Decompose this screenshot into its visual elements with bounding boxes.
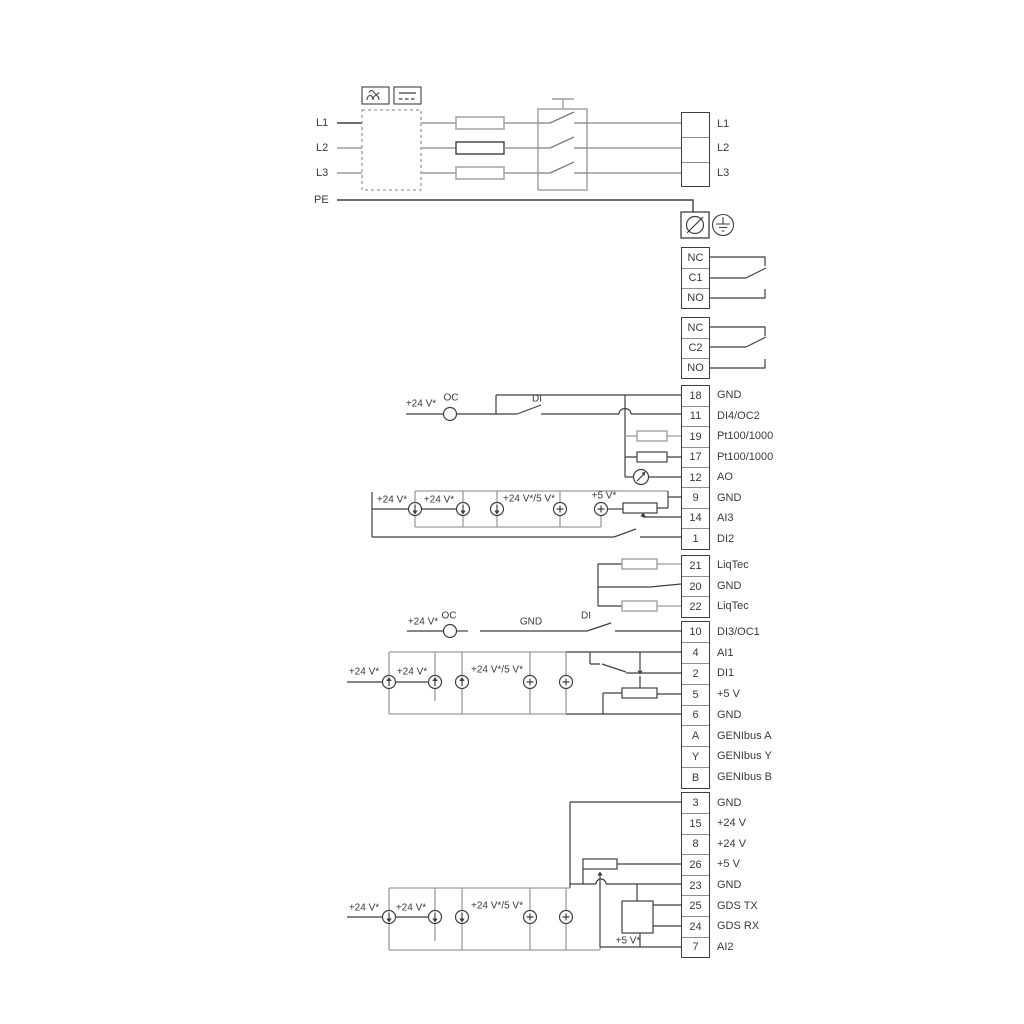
label-oc: OC bbox=[442, 611, 457, 622]
terminal-label: DI4/OC2 bbox=[717, 407, 760, 425]
ac-symbol-icon bbox=[362, 87, 389, 104]
terminal-cell: 14 bbox=[682, 508, 709, 528]
label-oc: OC bbox=[444, 393, 459, 404]
terminal-label: AI3 bbox=[717, 509, 734, 527]
terminal-cell: 7 bbox=[682, 937, 709, 958]
relay2-switch-icon bbox=[709, 337, 766, 347]
terminal-cell: 12 bbox=[682, 467, 709, 487]
terminal-label: GND bbox=[717, 577, 741, 595]
terminal-cell: 10 bbox=[682, 622, 709, 642]
resistor-icon bbox=[622, 559, 657, 569]
label-5v: +5 V* bbox=[616, 936, 641, 947]
terminal-cell: 2 bbox=[682, 663, 709, 684]
open-collector-icon bbox=[444, 625, 457, 638]
terminal-label: DI3/OC1 bbox=[717, 623, 760, 641]
label-di: DI bbox=[581, 611, 591, 622]
output-label-l1: L1 bbox=[717, 115, 729, 133]
terminal-label: GND bbox=[717, 706, 741, 724]
terminal-cell: 19 bbox=[682, 426, 709, 446]
fuse-icon bbox=[456, 117, 504, 179]
terminal-block-io2: 10 4 2 5 6 A Y B bbox=[681, 621, 710, 789]
terminal-cell: 5 bbox=[682, 684, 709, 705]
io1-wires bbox=[406, 395, 681, 485]
terminal-cell: B bbox=[682, 767, 709, 788]
terminal-cell: 18 bbox=[682, 386, 709, 406]
terminal-cell: 21 bbox=[682, 556, 709, 576]
terminal-label: GDS TX bbox=[717, 897, 758, 915]
terminal-label: +24 V bbox=[717, 814, 746, 832]
label-24v: +24 V* bbox=[377, 495, 407, 506]
terminal-label: AI1 bbox=[717, 644, 734, 662]
terminal-cell bbox=[682, 162, 709, 187]
wire-hop bbox=[619, 409, 681, 415]
label-24v: +24 V* bbox=[424, 495, 454, 506]
input-label-l3: L3 bbox=[316, 164, 328, 182]
terminal-block-relay1: NC C1 NO bbox=[681, 247, 710, 309]
ai2-options bbox=[347, 802, 681, 950]
wiper-arrow bbox=[597, 872, 602, 876]
di-switch-icon bbox=[496, 405, 619, 414]
terminal-cell: 11 bbox=[682, 406, 709, 426]
terminal-cell: C2 bbox=[682, 338, 709, 358]
terminal-cell: 20 bbox=[682, 576, 709, 596]
terminal-cell: 3 bbox=[682, 793, 709, 813]
input-label-l2: L2 bbox=[316, 139, 328, 157]
terminal-cell: 22 bbox=[682, 596, 709, 616]
resistor-icon bbox=[637, 431, 667, 441]
terminal-cell: NO bbox=[682, 288, 709, 308]
screw-terminal-icon bbox=[681, 212, 709, 238]
terminal-label: AO bbox=[717, 468, 733, 486]
terminal-cell: NC bbox=[682, 248, 709, 268]
ai1-options bbox=[347, 652, 681, 714]
label-5v: +5 V* bbox=[592, 491, 617, 502]
label-di: DI bbox=[532, 394, 542, 405]
terminal-label: GENIbus B bbox=[717, 768, 772, 786]
mains-section bbox=[337, 87, 734, 238]
terminal-label: +5 V bbox=[717, 685, 740, 703]
terminal-block-mains-out bbox=[681, 112, 710, 187]
terminal-cell bbox=[682, 113, 709, 137]
resistor-icon bbox=[637, 452, 667, 462]
open-collector-icon bbox=[444, 408, 457, 421]
di2-switch-icon bbox=[372, 529, 681, 537]
terminal-block-relay2: NC C2 NO bbox=[681, 317, 710, 379]
terminal-block-io1: 18 11 19 17 12 9 14 1 bbox=[681, 385, 710, 550]
wiring-diagram: NC C1 NO NC C2 NO 18 11 19 17 12 9 14 1 … bbox=[0, 0, 1024, 1024]
terminal-label: LiqTec bbox=[717, 556, 749, 574]
terminal-label: GND bbox=[717, 794, 741, 812]
terminal-cell: 23 bbox=[682, 875, 709, 896]
potentiometer-icon bbox=[622, 688, 657, 698]
voltage-source-icon bbox=[554, 503, 608, 516]
label-24v-5v: +24 V*/5 V* bbox=[471, 901, 523, 912]
terminal-cell: 6 bbox=[682, 705, 709, 726]
pe-line bbox=[337, 200, 693, 212]
label-24v-5v: +24 V*/5 V* bbox=[471, 665, 523, 676]
terminal-label: +5 V bbox=[717, 855, 740, 873]
terminal-label: GND bbox=[717, 876, 741, 894]
di1-switch-icon bbox=[590, 652, 681, 673]
terminal-cell bbox=[682, 137, 709, 162]
terminal-block-io3: 3 15 8 26 23 25 24 7 bbox=[681, 792, 710, 958]
output-label-l2: L2 bbox=[717, 139, 729, 157]
label-24v: +24 V* bbox=[406, 399, 436, 410]
terminal-label: GENIbus Y bbox=[717, 747, 772, 765]
terminal-cell: NC bbox=[682, 318, 709, 338]
terminal-cell: 8 bbox=[682, 834, 709, 855]
relay1-switch-icon bbox=[709, 268, 766, 278]
terminal-cell: 4 bbox=[682, 642, 709, 663]
terminal-cell: 1 bbox=[682, 528, 709, 548]
terminal-cell: 9 bbox=[682, 487, 709, 507]
label-24v: +24 V* bbox=[397, 667, 427, 678]
terminal-cell: 25 bbox=[682, 895, 709, 916]
voltage-source-icon bbox=[524, 911, 573, 924]
terminal-cell: 15 bbox=[682, 813, 709, 834]
disconnect-switch-icon bbox=[538, 99, 587, 190]
label-24v: +24 V* bbox=[349, 903, 379, 914]
terminal-label: GND bbox=[717, 489, 741, 507]
terminal-label: Pt100/1000 bbox=[717, 448, 773, 466]
label-24v: +24 V* bbox=[408, 617, 438, 628]
output-label-l3: L3 bbox=[717, 164, 729, 182]
label-24v-5v: +24 V*/5 V* bbox=[503, 494, 555, 505]
terminal-label: DI2 bbox=[717, 530, 734, 548]
terminal-label: DI1 bbox=[717, 664, 734, 682]
terminal-cell: A bbox=[682, 725, 709, 746]
di3-row bbox=[407, 623, 681, 638]
input-label-l1: L1 bbox=[316, 114, 328, 132]
terminal-label: GDS RX bbox=[717, 917, 759, 935]
label-24v: +24 V* bbox=[396, 903, 426, 914]
terminal-label: GENIbus A bbox=[717, 727, 771, 745]
wire-hop bbox=[570, 879, 681, 884]
terminal-label: AI2 bbox=[717, 938, 734, 956]
terminal-cell: C1 bbox=[682, 268, 709, 288]
dc-symbol-icon bbox=[394, 87, 421, 104]
rfi-filter-box bbox=[362, 110, 421, 190]
earth-ground-icon bbox=[713, 215, 734, 236]
terminal-cell: 24 bbox=[682, 916, 709, 937]
input-label-pe: PE bbox=[314, 191, 329, 209]
label-24v: +24 V* bbox=[349, 667, 379, 678]
resistor-icon bbox=[622, 601, 657, 611]
label-gnd: GND bbox=[520, 617, 542, 628]
terminal-block-liqtec: 21 20 22 bbox=[681, 555, 710, 618]
terminal-cell: Y bbox=[682, 746, 709, 767]
voltage-source-icon bbox=[524, 676, 573, 689]
terminal-label: Pt100/1000 bbox=[717, 427, 773, 445]
terminal-cell: NO bbox=[682, 358, 709, 378]
potentiometer-icon bbox=[623, 503, 657, 513]
potentiometer-icon bbox=[583, 859, 617, 869]
terminal-cell: 26 bbox=[682, 854, 709, 875]
gds-sensor-box bbox=[622, 901, 653, 933]
terminal-label: +24 V bbox=[717, 835, 746, 853]
terminal-label: LiqTec bbox=[717, 597, 749, 615]
meter-icon bbox=[634, 470, 649, 485]
terminal-cell: 17 bbox=[682, 447, 709, 467]
wiring-svg bbox=[0, 0, 1024, 1024]
liqtec-wires bbox=[598, 559, 681, 611]
terminal-label: GND bbox=[717, 386, 741, 404]
di-switch-icon bbox=[480, 623, 681, 631]
relay-contacts bbox=[709, 257, 766, 368]
